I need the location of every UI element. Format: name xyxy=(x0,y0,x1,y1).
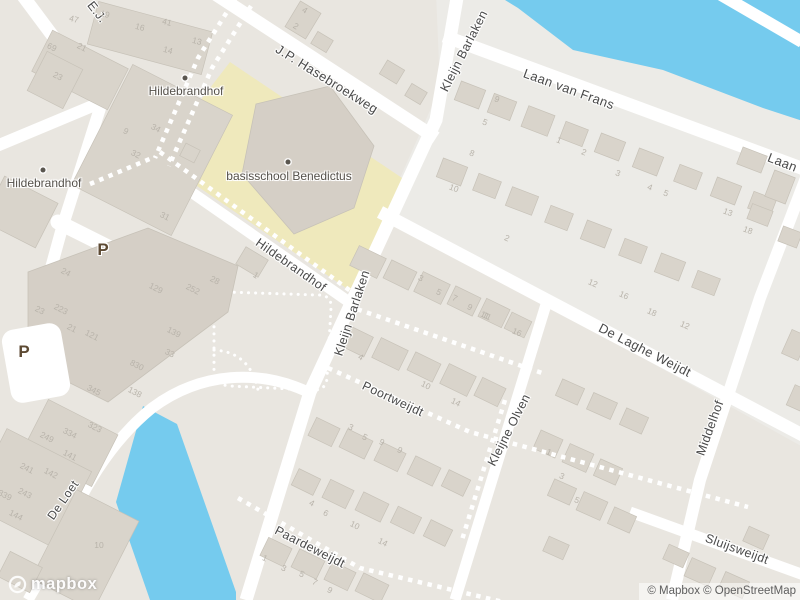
map-canvas[interactable]: E.J.J.P. HasebroekwegKleijn BarlakenLaan… xyxy=(0,0,800,600)
parking-lot-area xyxy=(0,321,72,404)
map-base-layer xyxy=(0,0,800,600)
attribution-text[interactable]: © Mapbox © OpenStreetMap xyxy=(639,583,800,600)
mapbox-logo[interactable]: mapbox xyxy=(8,575,97,594)
mapbox-logo-text: mapbox xyxy=(31,575,97,594)
mapbox-logo-icon xyxy=(8,575,27,594)
